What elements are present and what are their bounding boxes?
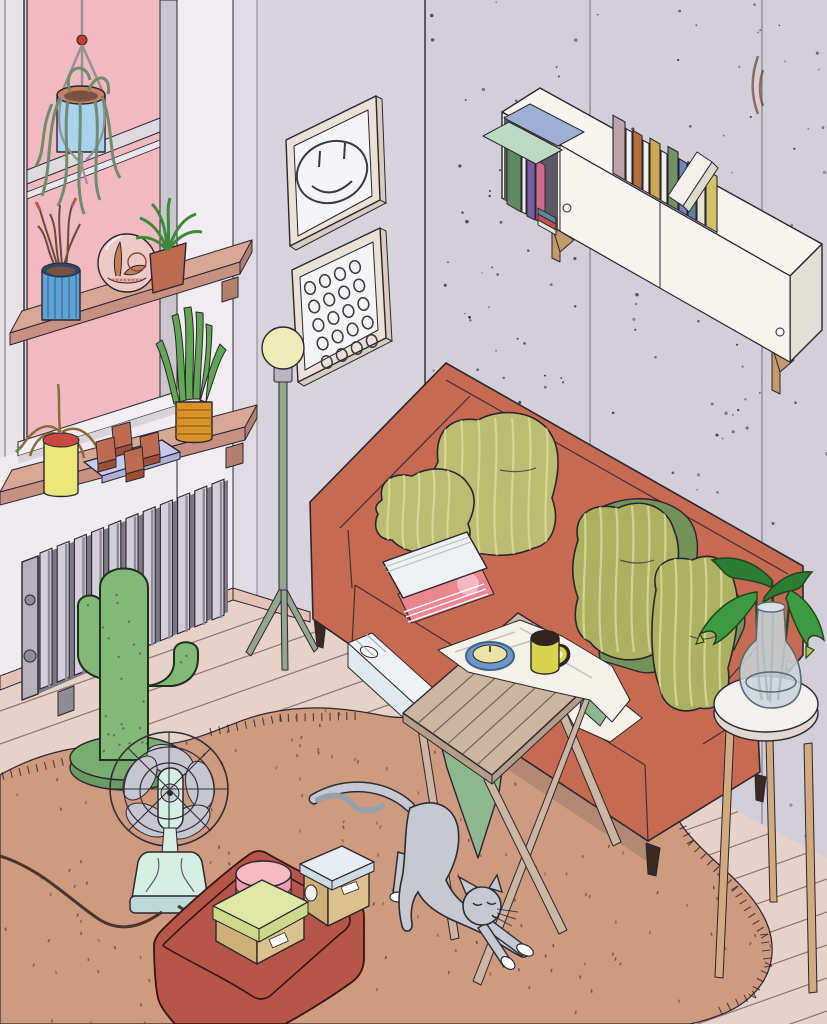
cactus-trunk <box>100 569 148 761</box>
macrame-bead <box>77 35 87 45</box>
lamp-bulb <box>262 327 304 369</box>
living-room-illustration: Isometric living-room illustration with … <box>0 0 827 1024</box>
terrarium <box>98 234 156 292</box>
radiator-valve <box>25 595 35 605</box>
shelf-bracket <box>222 277 238 302</box>
lamp-pole <box>279 380 287 590</box>
wall-column-side <box>233 0 257 596</box>
lamp-leg <box>281 590 288 670</box>
cat-head <box>463 887 501 925</box>
yellow-pot <box>44 440 78 497</box>
mustard-pot <box>176 402 212 443</box>
box-handle-hole <box>305 885 317 901</box>
illustration-canvas: Isometric living-room illustration with … <box>0 0 827 1024</box>
fan-base <box>132 852 208 898</box>
fan-neck <box>162 828 178 854</box>
radiator-valve <box>24 650 36 662</box>
shelf-bracket <box>226 443 243 468</box>
